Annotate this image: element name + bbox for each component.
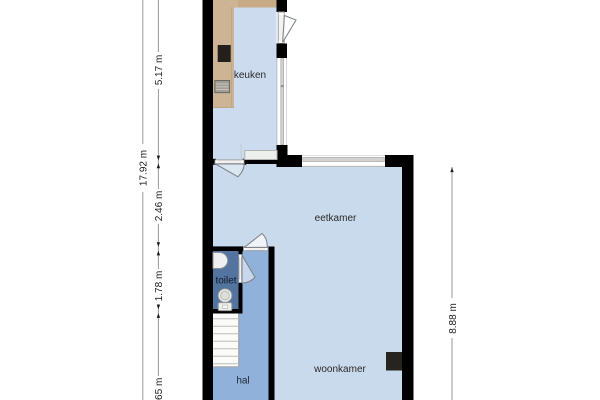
svg-text:8.88 m: 8.88 m	[448, 303, 459, 334]
svg-text:hal: hal	[236, 376, 249, 387]
svg-text:17.92 m: 17.92 m	[139, 150, 150, 186]
svg-text:3.65 m: 3.65 m	[154, 378, 165, 400]
svg-text:keuken: keuken	[234, 70, 266, 81]
svg-text:1.78 m: 1.78 m	[154, 271, 165, 302]
svg-text:eetkamer: eetkamer	[315, 213, 357, 224]
svg-text:toilet: toilet	[215, 276, 236, 287]
svg-text:woonkamer: woonkamer	[313, 364, 366, 375]
svg-text:5.17 m: 5.17 m	[154, 55, 165, 86]
svg-text:2.46 m: 2.46 m	[154, 191, 165, 222]
